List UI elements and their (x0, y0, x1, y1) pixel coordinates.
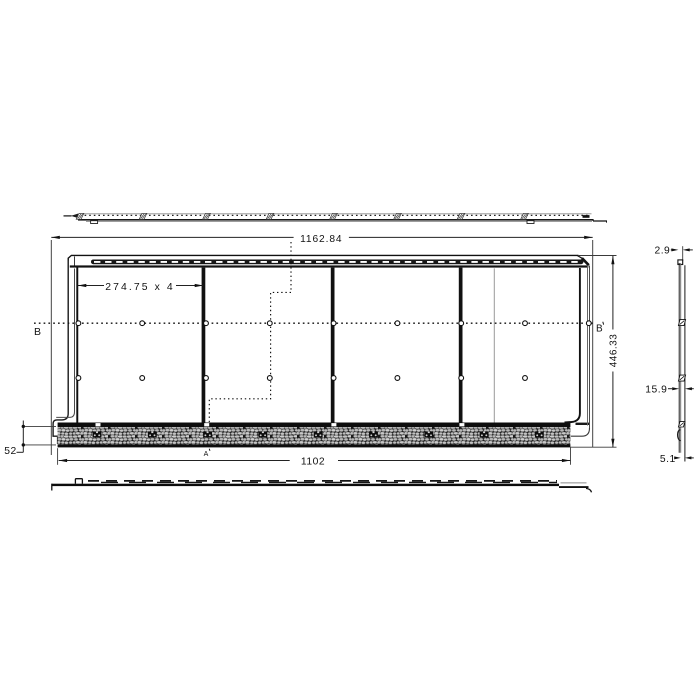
svg-text:52: 52 (4, 446, 16, 457)
svg-text:274.75 x 4: 274.75 x 4 (105, 282, 175, 293)
svg-text:B: B (34, 326, 41, 338)
svg-text:446.33: 446.33 (608, 334, 619, 368)
svg-text:1102: 1102 (301, 457, 325, 468)
svg-text:B: B (596, 324, 603, 335)
svg-text:1162.84: 1162.84 (300, 234, 342, 245)
svg-text:5.1: 5.1 (660, 454, 676, 465)
svg-text:15.9: 15.9 (645, 385, 667, 396)
svg-text:A: A (204, 451, 209, 458)
svg-text:2.9: 2.9 (654, 245, 670, 256)
